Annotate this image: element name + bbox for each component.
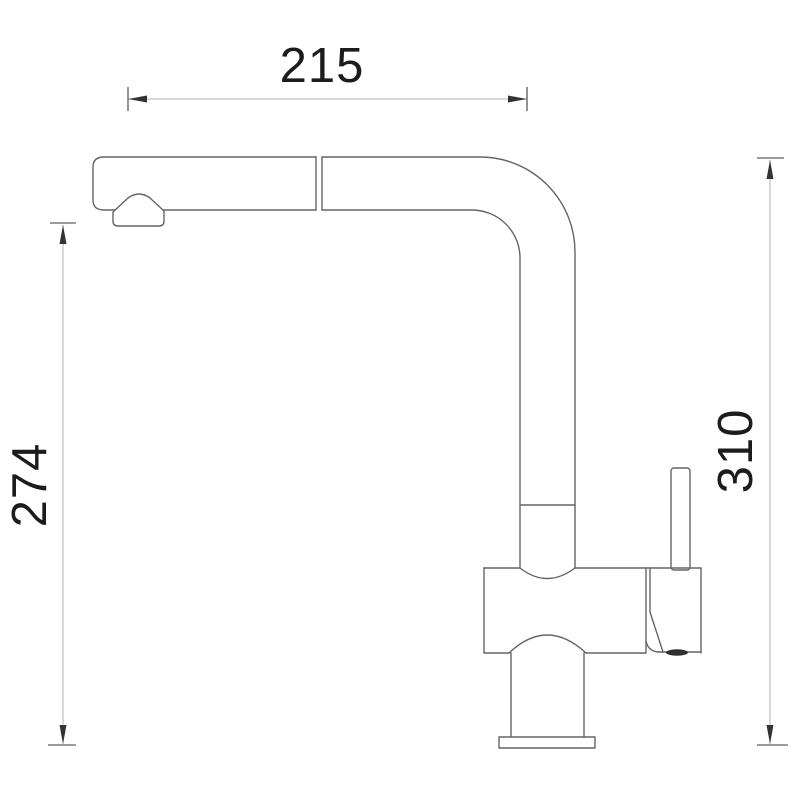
handle-housing-diagonal — [650, 612, 663, 652]
dimension-left-height: 274 — [3, 223, 76, 745]
dim-label-right-height: 310 — [709, 409, 763, 494]
housing-dark-detail — [666, 649, 688, 655]
faucet-outline-group — [93, 157, 701, 748]
drawing-canvas: 215 274 310 — [0, 0, 800, 800]
base-column-sides — [511, 653, 584, 737]
base-dome-arch — [509, 635, 586, 653]
handle-housing-corner-arc — [646, 641, 658, 652]
faucet-dimension-drawing: 215 274 310 — [0, 0, 800, 800]
dimension-right-height: 310 — [709, 158, 788, 745]
spray-head-joint-lines — [316, 157, 322, 210]
body-top-edge — [484, 568, 701, 579]
arrow-down-icon — [767, 725, 774, 744]
spout-arm-inner-edge — [322, 210, 520, 568]
handle-housing-joint-lines — [646, 568, 650, 652]
dimension-top-width: 215 — [128, 39, 527, 111]
body-side-edges — [484, 568, 701, 653]
aerator-spray-face — [113, 194, 164, 226]
handle-lever — [671, 468, 690, 570]
arrow-right-icon — [508, 96, 527, 103]
arrow-up-icon — [60, 225, 67, 244]
arrow-left-icon — [128, 96, 147, 103]
dim-label-top-width: 215 — [280, 39, 365, 93]
base-flange — [499, 737, 595, 748]
spout-arm-outer-edge — [322, 157, 575, 568]
arrow-down-icon — [60, 725, 67, 744]
dim-label-left-height: 274 — [3, 443, 57, 528]
arrow-up-icon — [767, 160, 774, 179]
